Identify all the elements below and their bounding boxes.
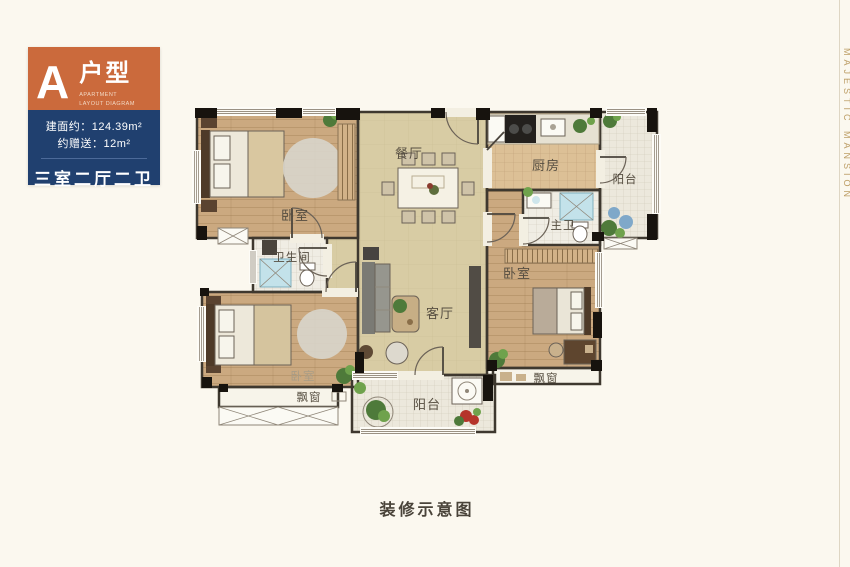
badge-top: A 户型 APARTMENT LAYOUT DIAGRAM: [28, 47, 160, 110]
room-label-bedroom-tl: 卧室: [281, 208, 309, 223]
kitchen-counter: [488, 114, 599, 144]
room-label-bay-left: 飘窗: [297, 390, 322, 404]
room-label-balcony-bottom: 阳台: [413, 397, 441, 412]
room-label-bedroom-bl: 卧室: [291, 369, 316, 383]
plan-caption: 装修示意图: [327, 496, 527, 520]
bay-right-item: [500, 372, 512, 381]
side-rule: [839, 0, 840, 567]
room-label-bathroom: 卫生间: [273, 250, 311, 264]
type-letter: A: [36, 59, 69, 105]
room-label-balcony-top: 阳台: [613, 172, 638, 186]
bed-right: [533, 287, 591, 335]
room-label-master-bath: 主卫: [551, 219, 576, 232]
bed-bottom-left: [206, 296, 291, 373]
room-label-dining: 餐厅: [395, 146, 423, 161]
badge-bottom: 建面约：124.39m² 约赠送：12m² 三室二厅二卫: [28, 110, 160, 185]
room-label-kitchen: 厨房: [532, 158, 560, 173]
badge-divider: [41, 158, 147, 159]
type-label: 户型: [79, 53, 135, 88]
wardrobe-top-left: [338, 124, 355, 200]
layout-type-text: 三室二厅二卫: [28, 165, 160, 190]
room-label-bedroom-right: 卧室: [503, 266, 531, 281]
built-area-text: 建面约：124.39m²: [28, 119, 160, 136]
gift-area-text: 约赠送：12m²: [28, 136, 160, 153]
apartment-type-badge: A 户型 APARTMENT LAYOUT DIAGRAM 建面约：124.39…: [28, 47, 160, 185]
rug-top-left: [283, 138, 343, 198]
badge-subtitle-line2: LAYOUT DIAGRAM: [79, 100, 135, 108]
wardrobe-right: [505, 249, 598, 263]
room-label-bay-right: 飘窗: [534, 371, 559, 385]
badge-subtitle-line1: APARTMENT: [79, 91, 135, 99]
brand-watermark: MAJESTIC MANSION: [842, 48, 850, 348]
bay-right-item2: [516, 374, 526, 381]
rug-bottom-left: [297, 309, 347, 359]
room-label-living: 客厅: [426, 306, 454, 321]
